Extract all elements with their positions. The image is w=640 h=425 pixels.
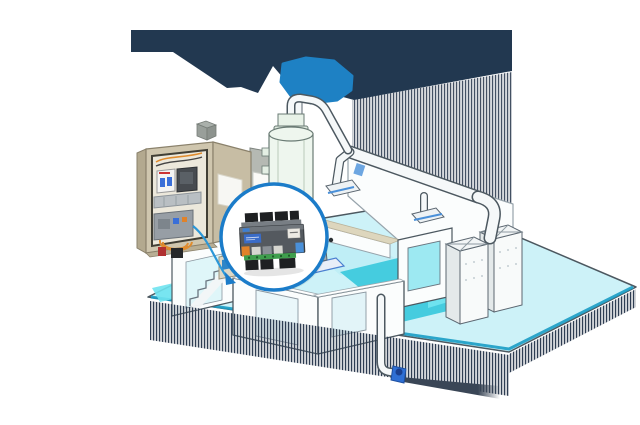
illustration-stage	[0, 0, 640, 425]
circuit-breaker	[157, 169, 175, 193]
controller-white-label	[288, 229, 300, 239]
sensor-dot	[329, 238, 333, 242]
magnifier-callout	[221, 184, 329, 292]
controller-blue-label	[244, 234, 261, 244]
cabinet-roof-box	[197, 121, 216, 140]
contactor	[177, 167, 197, 192]
building-automation-illustration	[0, 0, 640, 425]
drain-pump	[391, 366, 406, 383]
motor-starter	[154, 210, 193, 240]
window-wall	[398, 228, 452, 308]
air-handling-unit-1	[446, 237, 488, 324]
